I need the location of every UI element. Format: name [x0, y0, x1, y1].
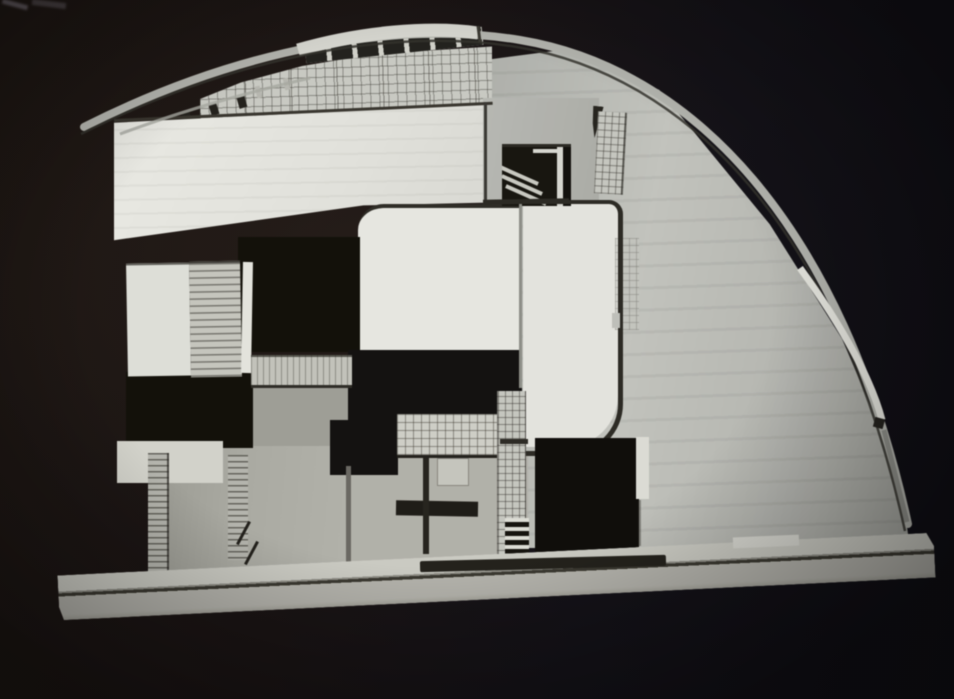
dark-opening-lower-left — [126, 372, 253, 448]
corner-artifact — [2, 0, 28, 10]
wall-right-edge-line — [484, 102, 487, 204]
lower-left-white-block — [117, 441, 223, 483]
rounded-outline-trim — [523, 200, 623, 456]
shadow-edge-strip — [346, 466, 351, 574]
ladder-wall — [148, 453, 169, 578]
architectural-model — [0, 0, 954, 699]
small-gray-block — [437, 458, 469, 486]
louvered-block-slats — [189, 261, 242, 378]
dark-opening-right — [535, 438, 639, 558]
tiled-beam — [251, 355, 352, 388]
dark-opening-left — [238, 237, 360, 352]
model-photograph — [0, 0, 954, 699]
window-frame — [533, 149, 563, 153]
stair-treads — [505, 518, 529, 556]
outline-trim-extension — [500, 439, 528, 444]
glass-grid-strip — [594, 111, 627, 194]
louvered-block-white-face — [126, 262, 191, 376]
dark-opening-center-step — [330, 420, 398, 475]
stair-window — [502, 144, 571, 206]
white-post — [636, 437, 649, 499]
tiled-panel — [397, 414, 497, 458]
window-jamb — [563, 147, 571, 206]
dark-lintel-bar — [396, 500, 478, 516]
dark-mullion-line — [423, 458, 429, 554]
outline-trim-gap — [612, 313, 620, 328]
center-white-volume — [358, 204, 520, 357]
panel-gap-line — [519, 204, 522, 388]
corner-artifact — [32, 0, 66, 9]
sail-seam-line — [638, 500, 641, 546]
